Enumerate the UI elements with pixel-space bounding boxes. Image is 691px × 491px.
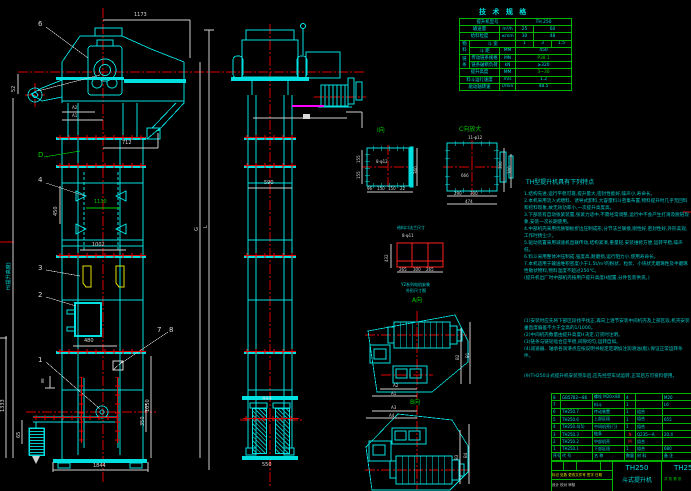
bolt-column <box>115 377 120 443</box>
callout-2: 2 <box>38 292 42 299</box>
dim-350: 350 <box>141 416 146 426</box>
section-ii-label: Ⅱ <box>41 379 44 385</box>
spec-gran-v1: 30 <box>516 33 534 40</box>
bom-no: 5 <box>552 416 561 423</box>
spec-rpm-value: 48.5 <box>516 83 572 90</box>
dim-1173: 1173 <box>134 13 147 18</box>
cad-canvas[interactable]: 1173 6 52 A2 A1 712 D 4 450 1130 1002 H(… <box>0 0 691 491</box>
notes-block-install: (1)安装时应先将下部区段找平找正,再向上逐节安装中间机壳及上部区段,机壳安装垂… <box>524 318 691 360</box>
yellow-buckets <box>83 266 124 287</box>
spec-w2: 3 <box>534 40 552 47</box>
spec-table-title: 技 术 规 格 <box>479 9 528 16</box>
dim-480: 480 <box>84 339 94 344</box>
spec-height-unit: MM <box>500 69 516 76</box>
bom-code: TH250.2 <box>561 438 593 445</box>
dim-a2-view: A2 <box>393 384 398 388</box>
note-line: 5.驱动装置采用减速机直联传动,结构紧凑,重量轻,安装维修方便,运转平稳,噪声低… <box>524 240 691 254</box>
bom-header-mat: 材 料 <box>636 453 663 460</box>
bom-note: 20.4 <box>663 430 691 437</box>
bom-qty: M <box>625 438 636 445</box>
dim-b2: B2 <box>456 355 460 360</box>
callout-6: 6 <box>38 21 42 28</box>
dim-g: G <box>195 227 200 231</box>
spec-break-unit: kN <box>500 62 516 69</box>
bom-code: GB5782—86 <box>561 394 593 401</box>
bom-code: TH250.7 <box>561 408 593 415</box>
spec-gran-label: 给料粒度 <box>460 33 500 40</box>
motor-note-line1: Y2系列电机安装 <box>401 283 430 287</box>
bom-no: 6 <box>552 408 561 415</box>
callout-3: 3 <box>38 265 42 272</box>
bom-qty: 1 <box>625 408 636 415</box>
view-b-label: B向 <box>410 400 420 406</box>
dim-444: 444 <box>262 397 272 402</box>
front-view <box>28 28 184 468</box>
feed-inlet-detail <box>397 243 443 267</box>
dim-150b: 150 <box>388 187 396 191</box>
dim-b1: B1 <box>466 353 470 358</box>
weight-arrow <box>32 456 40 464</box>
bom-name: 中间机壳(门) <box>593 423 625 430</box>
bom-name: 螺栓 M20×80 <box>593 394 625 401</box>
dim-11xphi12: 11-φ12 <box>468 136 482 140</box>
dim-b4: B4 <box>464 453 468 458</box>
dim-300a: 300 <box>499 161 503 169</box>
bolt-row <box>244 349 296 354</box>
bom-no: 3 <box>552 430 561 437</box>
note-line: (提升机出厂时中部机壳按用户提升高度H配置,分件包装供货。) <box>524 275 691 282</box>
bolt-row <box>243 416 299 421</box>
dim-a1-view: A1 <box>391 392 396 396</box>
spec-chain-label: 链条 <box>460 54 470 68</box>
side-view <box>233 24 362 456</box>
spec-cap-label: 输送量 <box>460 26 500 33</box>
drawing-code: TH250 <box>662 462 691 475</box>
callout-d: D <box>38 152 43 159</box>
note-line: 6.料斗采用整体冲压制成,强度高,耐磨损,运行阻力小,使用寿命长。 <box>524 254 691 261</box>
bom-note: 680 <box>663 445 691 452</box>
dim-box <box>303 114 310 119</box>
spec-height-value: 3~30 <box>516 69 572 76</box>
bom-mat: 组合 <box>636 408 663 415</box>
spec-chain-spec-unit: MN <box>500 54 516 61</box>
dim-a4: A4 <box>389 414 394 418</box>
dim-590: 590 <box>264 181 274 186</box>
dim-155a: 155 <box>357 155 361 163</box>
bom-name: 上部区段 <box>593 416 625 423</box>
note-line: (2)中间机壳数量由提升高度H决定,订货时注明。 <box>524 332 691 339</box>
bom-code: TH250.4(5) <box>561 423 593 430</box>
bom-mat: 组合 <box>636 438 663 445</box>
dim-265b: 265 <box>426 268 434 272</box>
dim-b3: B3 <box>455 455 459 460</box>
bom-no: 7 <box>552 401 561 408</box>
spec-height-label: 提升高度 <box>460 69 500 76</box>
callout-4: 4 <box>38 177 42 184</box>
bolt-row <box>57 253 146 258</box>
spec-speed-unit: m/s <box>500 76 516 83</box>
view-a-label: A向 <box>412 298 422 304</box>
note-line: 4.中部机壳采用优质钢板折边压制成形,分节法兰联接,刚性好,密封性好,外形美观,… <box>524 226 691 240</box>
bom-header-qty: 数量 <box>625 453 636 460</box>
revision-cell <box>601 462 612 470</box>
title-block-code-area: TH250 共 张 第 张 <box>662 462 691 491</box>
bearing-housing <box>88 46 122 95</box>
dim-550: 550 <box>262 463 272 468</box>
dim-96: 96 <box>367 187 372 191</box>
note-line: 3.下部装有自动张紧装置,张紧力适中,不需经常调整,运行中不会产生打滑及脱链现象… <box>524 212 691 226</box>
dim-360: 360 <box>414 166 418 174</box>
bolt-column <box>79 377 84 443</box>
dim-l: L <box>204 225 209 228</box>
spec-pitch-label: 斗 距 <box>470 47 500 54</box>
bom-header-no: 序号 <box>552 453 561 460</box>
title-block: 标记 处数 更改文件号 签字 日期 设计 校对 审核 TH250 斗式提升机 T… <box>551 461 691 491</box>
dim-155b: 155 <box>357 171 361 179</box>
bom-mat: 组合 <box>636 416 663 423</box>
counterweight-hatch <box>29 428 45 456</box>
dim-8xphi11: 8-φ11 <box>402 234 414 238</box>
notes-block-final: (9)TH250斗式提升机安装完毕后,应先经空车试运转,正常后方可投料使用。 <box>524 373 691 380</box>
revision-cell <box>577 462 601 470</box>
bom-code: TH250.6 <box>561 416 593 423</box>
dim-432: 432 <box>385 254 389 262</box>
takeup-screw <box>275 408 290 454</box>
bom-qty: 4 <box>625 394 636 401</box>
note-line: 1.结构先进,运行平稳可靠,提升量大,密封性能好,噪声小,寿命长。 <box>524 191 691 198</box>
dim-1130: 1130 <box>94 200 107 205</box>
notes-heading: TH型提升机具有下列特点 <box>526 180 594 186</box>
takeup-screw <box>252 408 267 454</box>
bom-qty: 1 <box>625 416 636 423</box>
dim-666: 666 <box>461 174 469 178</box>
bom-code: TH250.3 <box>561 430 593 437</box>
bom-qty: 1 <box>625 445 636 452</box>
dim-1002: 1002 <box>92 243 105 248</box>
green-marks <box>44 151 120 208</box>
spec-chain-spec-label: 传动链条规格 <box>470 54 500 61</box>
bom-name: 下部区段 <box>593 445 625 452</box>
bom-no: 2 <box>552 438 561 445</box>
bom-note <box>663 408 691 415</box>
bucket <box>76 224 86 234</box>
detail-views <box>365 141 513 490</box>
bom-mat: Q235—A <box>636 430 663 437</box>
bom-name: 料斗 <box>593 401 625 408</box>
feed-flange-title: 给料口法兰尺寸 <box>397 226 425 230</box>
dim-1844: 1844 <box>93 464 106 469</box>
note-line: (3)链条与链轮啮合应平稳,间隙均匀,运转自如。 <box>524 339 691 346</box>
dim-474: 474 <box>465 200 473 204</box>
bom-note: M20 <box>663 394 691 401</box>
spec-cap-unit: m³/h <box>500 26 516 33</box>
dim-lift-height: H(提升高度) <box>7 262 12 290</box>
dim-a2: A2 <box>72 106 77 110</box>
bom-header-note: 备 注 <box>663 453 691 460</box>
spec-w1: 1 <box>516 40 534 47</box>
revision-cell <box>564 462 576 470</box>
spec-gran-unit: ≤mm <box>500 33 516 40</box>
bom-table: 8GB5782—86螺栓 M20×804M20 7料斗1L6 6TH250.7传… <box>551 393 691 461</box>
bom-qty: N <box>625 430 636 437</box>
spec-rpm-label: 驱动轴转速 <box>460 83 500 90</box>
bom-note <box>663 438 691 445</box>
gear-reducer <box>306 52 340 78</box>
bolt-row <box>57 135 146 140</box>
dim-1333: 1333 <box>1 399 6 412</box>
callout-1: 1 <box>38 357 42 364</box>
note-line: (9)TH250斗式提升机安装完毕后,应先经空车试运转,正常后方可投料使用。 <box>524 373 691 380</box>
spec-pitch-unit: MM <box>500 47 516 54</box>
signature-row: 设计 校对 审核 <box>552 480 612 491</box>
spec-speed-value: 1.2 <box>516 76 572 83</box>
bom-code: TH250.1 <box>561 445 593 452</box>
dim-290: 290 <box>454 192 462 196</box>
spec-chain-spec-value: P38.1 <box>516 54 572 61</box>
bolt-row <box>57 163 146 168</box>
spec-material-label: 物料 <box>460 40 470 54</box>
dim-300c: 300 <box>470 192 478 196</box>
bom-name: 链条 <box>593 430 625 437</box>
view-i-label: Ⅰ向 <box>377 128 385 134</box>
spec-cap-v1: 25 <box>516 26 534 33</box>
bom-mat: 组合 <box>636 423 663 430</box>
revision-row-label: 标记 处数 更改文件号 签字 日期 <box>552 471 612 480</box>
sheet-count: 共 张 第 张 <box>662 475 691 483</box>
spec-w3: 1.5 <box>552 40 572 47</box>
note-line: 7.本机适用于输送堆积密度小于1.5t/m³的粉状、粒状、小块状无磨琢性及半磨琢… <box>524 261 691 275</box>
note-line: 2.本机采用流入式喂料、诱导式卸料,大容量料斗密集布置,物料提升时几乎无回料和挖… <box>524 198 691 212</box>
bom-header-name: 名 称 <box>593 453 625 460</box>
spec-break-value: ≥320 <box>516 62 572 69</box>
bolt-row <box>33 415 119 420</box>
bom-note: 655 <box>663 416 691 423</box>
bucket <box>116 191 126 201</box>
dim-300b: 300 <box>508 166 512 174</box>
dim-265a: 265 <box>399 268 407 272</box>
callout-7: 7 <box>157 327 161 334</box>
view-c-label: C向放大 <box>459 127 481 133</box>
title-block-name-area: TH250 斗式提升机 <box>613 462 662 491</box>
spec-model-label: 提升机型号 <box>460 19 516 26</box>
spec-model-value: TH 250 <box>516 19 572 26</box>
bom-name: 中部机壳 <box>593 438 625 445</box>
bom-qty: 1 <box>625 423 636 430</box>
bom-mat <box>636 401 663 408</box>
callout-8: 8 <box>169 327 173 334</box>
note-line: (1)安装时应先将下部区段找平找正,再向上逐节安装中间机壳及上部区段,机壳安装垂… <box>524 318 691 332</box>
bom-no: 1 <box>552 445 561 452</box>
spec-table: 提升机型号TH 250 输送量m³/h2560 给料粒度≤mm3048 物料斗 … <box>459 18 572 91</box>
dim-1050: 1050 <box>146 399 151 412</box>
product-name: 斗式提升机 <box>613 475 661 487</box>
revision-cell <box>552 462 564 470</box>
bom-mat <box>636 394 663 401</box>
dim-8xphi12: 8-φ12 <box>376 160 388 164</box>
dim-a3: A3 <box>391 406 396 410</box>
inspection-door <box>75 303 101 336</box>
bom-code <box>561 401 593 408</box>
dim-a1: A1 <box>72 114 77 118</box>
title-block-revision-area: 标记 处数 更改文件号 签字 日期 设计 校对 审核 <box>552 462 613 491</box>
bom-note: L6 <box>663 401 691 408</box>
spec-break-label: 链条破断负荷 <box>470 62 500 69</box>
revision-cells <box>552 462 612 471</box>
dim-22: 22 <box>400 187 405 191</box>
dim-150a: 150 <box>377 187 385 191</box>
spec-cap-v2: 60 <box>534 26 572 33</box>
spec-pitch-value: 450 <box>516 47 572 54</box>
model-number: TH250 <box>613 462 661 475</box>
dim-300d: 300 <box>413 268 421 272</box>
note-line: (4)减速器、轴承各润滑点应按说明书规定定期加注润滑油(脂),保证正常运转条件。 <box>524 346 691 360</box>
dim-712: 712 <box>122 141 132 146</box>
bom-mat: 组合 <box>636 445 663 452</box>
bom-no: 8 <box>552 394 561 401</box>
dim-450: 450 <box>54 206 59 216</box>
bom-name: 传动装置 <box>593 408 625 415</box>
bucket <box>116 224 126 234</box>
bom-note <box>663 423 691 430</box>
bolt-row <box>244 163 296 168</box>
spec-speed-label: 料斗运行速度 <box>460 76 500 83</box>
bolt-row <box>244 253 296 258</box>
bolt-row <box>244 135 296 140</box>
motor-note-line2: 外形尺寸图 <box>406 289 426 293</box>
bom-no: 4 <box>552 423 561 430</box>
spec-gran-v2: 48 <box>534 33 572 40</box>
notes-block-features: 1.结构先进,运行平稳可靠,提升量大,密封性能好,噪声小,寿命长。 2.本机采用… <box>524 191 691 282</box>
bom-header-code: 代 号 <box>561 453 593 460</box>
bolt-row <box>57 349 146 354</box>
bom-qty: 1 <box>625 401 636 408</box>
dim-65: 65 <box>17 432 22 438</box>
spec-width-label: 斗 宽 <box>470 40 516 47</box>
spec-rpm-unit: r/min <box>500 83 516 90</box>
dim-52: 52 <box>12 86 17 92</box>
